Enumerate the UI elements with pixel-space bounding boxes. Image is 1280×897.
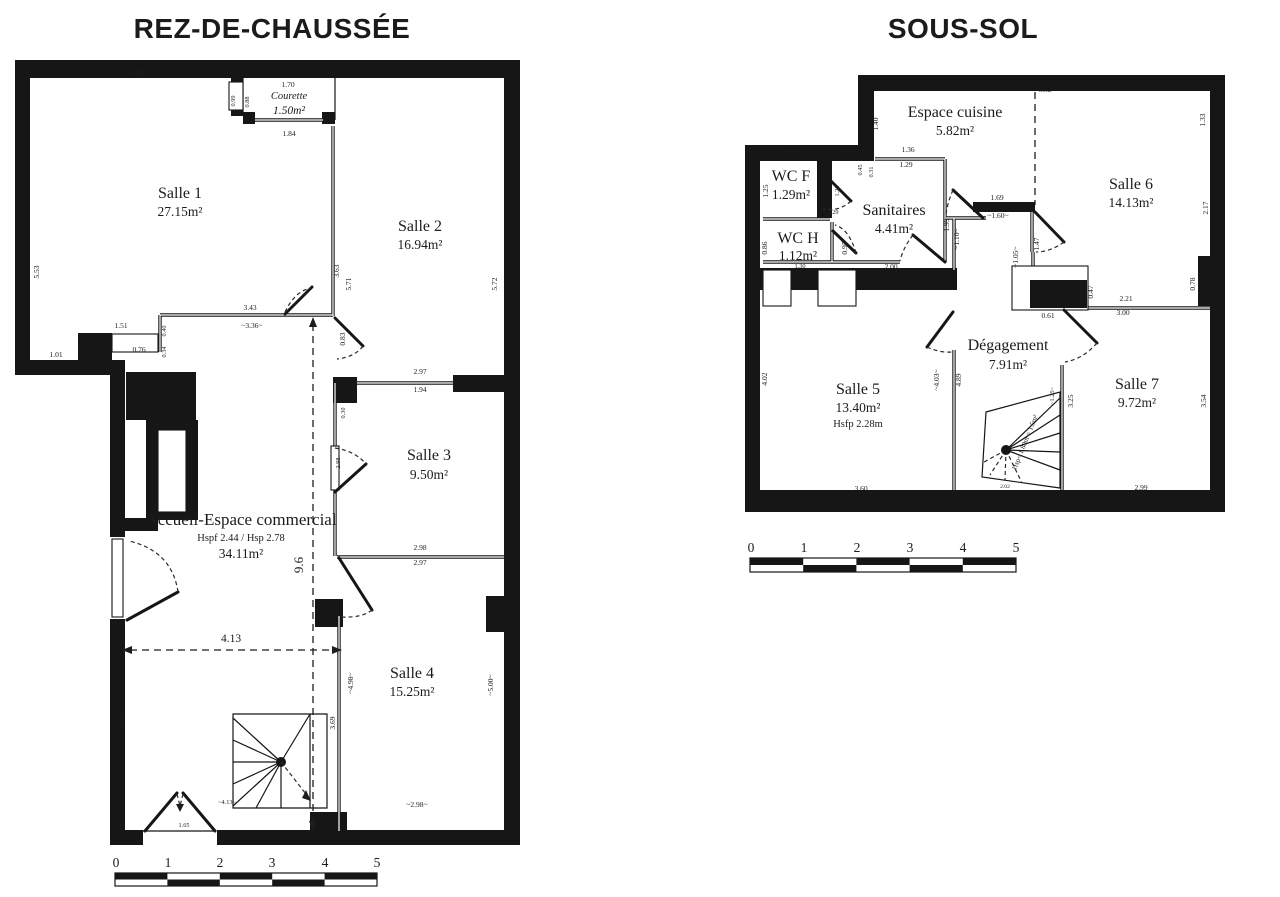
dim-label: 5.71: [344, 277, 353, 290]
dim-label: 5.53: [32, 265, 41, 278]
dim-label: ~2.98~: [406, 800, 427, 809]
wall-niche: [158, 430, 186, 512]
dim-label: 0.30: [340, 407, 347, 418]
dim-label: 3.77: [114, 711, 123, 724]
dim-label: 1.40: [871, 117, 880, 130]
dim-label: 0.45: [857, 164, 864, 175]
room-name: Salle 3: [407, 447, 451, 464]
dim-label: 0.30: [1200, 255, 1211, 262]
dim-label: 2.98: [335, 457, 342, 468]
room-area: 1.12m²: [779, 248, 817, 263]
dim-label: 0.35: [348, 386, 355, 397]
room-name: Accueil-Espace commercial: [145, 510, 336, 529]
dim-label: 3.63: [332, 264, 341, 277]
scale-tick: 0: [113, 855, 120, 870]
dim-label: 2.98: [413, 543, 426, 552]
dim-label: ~1.05~: [1011, 246, 1020, 267]
dim-label: ~5.00~: [486, 674, 495, 695]
dim-label: 0.78: [1188, 277, 1197, 290]
dim-label: 1.25: [761, 184, 770, 197]
dim-label: 0.59: [77, 343, 84, 354]
dim-label: 3.00: [1116, 308, 1129, 317]
scale-tick: 2: [217, 855, 224, 870]
dim-label: 0.47: [1086, 285, 1095, 298]
dim-label: 0.40: [161, 325, 168, 336]
dim-label: 0.76: [132, 345, 145, 354]
room-area: 9.72m²: [1118, 395, 1156, 410]
dim-label: 1.70: [281, 80, 294, 89]
scale-tick: 0: [748, 540, 755, 555]
plan-rez-de-chaussee: REZ-DE-CHAUSSÉE: [15, 13, 520, 886]
dim-label: 1.29: [899, 160, 912, 169]
room-area: 16.94m²: [398, 237, 443, 252]
dim-label: 6.52: [1038, 85, 1051, 94]
scale-tick: 4: [322, 855, 329, 870]
scale-tick: 1: [165, 855, 172, 870]
dim-label: 9.6: [291, 556, 306, 573]
dim-label: 1.20: [834, 185, 841, 196]
room-name: Salle 7: [1115, 376, 1159, 393]
dim-label: 4.89: [954, 373, 963, 386]
ssol-scale-bar: 0 1 2 3 4 5: [748, 540, 1020, 572]
dim-label: 2.21: [1119, 294, 1132, 303]
room-height-note: Hsfp 2.28m: [833, 419, 883, 430]
room-area: 4.41m²: [875, 221, 913, 236]
dim-label: 1.69: [990, 193, 1003, 202]
dim-label: 2.97: [413, 367, 426, 376]
wall-niche: [818, 270, 856, 306]
room-name: Espace cuisine: [908, 104, 1003, 121]
dim-label: 2.99: [1134, 483, 1147, 492]
dim-label: 2.00: [884, 262, 897, 271]
dim-label: 2.17: [1201, 201, 1210, 214]
dim-label: 2.97: [413, 558, 426, 567]
ssol-walls: [745, 75, 1225, 512]
dim-label: ~4.03~: [932, 369, 941, 390]
dim-label: 0.95: [840, 241, 849, 254]
dim-label: ~3.36~: [241, 321, 262, 330]
scale-tick: 1: [801, 540, 808, 555]
dim-label: ~1.10~: [952, 228, 961, 249]
room-area: 1.50m²: [273, 105, 305, 117]
dim-label: 1.36: [901, 145, 914, 154]
dim-label: 0.83: [338, 332, 347, 345]
scale-tick: 5: [374, 855, 381, 870]
room-area: 9.50m²: [410, 467, 448, 482]
dim-label: 0.92: [842, 149, 855, 158]
dim-label: 1.30: [794, 263, 805, 270]
dim-label: 0.99: [230, 95, 237, 106]
dim-label: 1.84: [282, 129, 295, 138]
dim-label: 5.72: [490, 277, 499, 290]
room-name: Salle 4: [390, 665, 434, 682]
dim-label: 2.02: [1000, 484, 1010, 490]
plan-title: SOUS-SOL: [888, 13, 1038, 44]
scale-tick: 4: [960, 540, 967, 555]
room-name: Sanitaires: [862, 202, 925, 219]
dim-label: 1.47: [1032, 237, 1041, 250]
floor-plan-page: REZ-DE-CHAUSSÉE: [0, 0, 1280, 897]
wall-niche: [763, 270, 791, 306]
dim-label: 0.34: [161, 346, 168, 358]
dim-label: 1.94: [413, 385, 426, 394]
scale-tick: 3: [269, 855, 276, 870]
dim-label: 3.54: [1199, 394, 1208, 407]
room-name: Dégagement: [968, 337, 1049, 354]
dim-label: 1.33: [1198, 113, 1207, 126]
dim-label: 4.09: [133, 67, 146, 76]
stair-newel: [1001, 445, 1011, 455]
ssol-stair: Hsp< 1.80m = 1.5m²: [982, 392, 1060, 488]
room-name: Salle 5: [836, 381, 880, 398]
dim-label: 0.29: [827, 209, 838, 216]
room-area: 14.13m²: [1109, 195, 1154, 210]
dim-label: 4.13: [221, 633, 241, 645]
dim-label: 4.02: [760, 372, 769, 385]
dim-label: ~1.60~: [987, 211, 1008, 220]
room-area: 34.11m²: [219, 546, 263, 561]
scale-tick: 5: [1013, 540, 1020, 555]
floor-plan-canvas: REZ-DE-CHAUSSÉE: [0, 0, 1280, 897]
room-area: 1.29m²: [772, 187, 810, 202]
dim-label: 0.88: [244, 96, 251, 107]
dim-label: ~1.25~: [1049, 386, 1056, 404]
plan-title: REZ-DE-CHAUSSÉE: [134, 13, 411, 44]
dim-label: ~4.13~: [218, 799, 236, 806]
room-name: Salle 1: [158, 185, 202, 202]
rdc-scale-bar: 0 1 2 3 4 5: [113, 855, 381, 886]
door-jamb: [112, 539, 123, 617]
room-area: 15.25m²: [390, 684, 435, 699]
room-name: WC F: [772, 168, 811, 185]
dim-label: 3.25: [1066, 394, 1075, 407]
dim-label: 1.65: [178, 822, 189, 829]
room-area: 7.91m²: [989, 357, 1027, 372]
room-name: Courette: [271, 91, 308, 102]
dim-label: 1.03: [784, 148, 797, 157]
dim-label: 0.61: [1041, 311, 1054, 320]
dim-label: 0.31: [868, 166, 875, 177]
room-area: 13.40m²: [836, 400, 881, 415]
dim-label: 3.60: [854, 484, 867, 493]
dim-label: 3.69: [328, 716, 337, 729]
room-name: Salle 6: [1109, 176, 1153, 193]
dim-label: 0.86: [760, 241, 769, 254]
dim-label: 1.99: [942, 218, 951, 231]
dim-label: 1.01: [49, 350, 62, 359]
room-name: WC H: [777, 230, 819, 247]
room-height-note: Hspf 2.44 / Hsp 2.78: [197, 533, 285, 544]
room-name: Salle 2: [398, 218, 442, 235]
door-leaf: [821, 171, 1097, 347]
room-area: 5.82m²: [936, 123, 974, 138]
plan-sous-sol: SOUS-SOL Hsp: [745, 13, 1225, 572]
room-area: 27.15m²: [158, 204, 203, 219]
dim-label: 1.51: [114, 321, 127, 330]
dim-label: ~4.98~: [346, 672, 355, 693]
scale-tick: 3: [907, 540, 914, 555]
scale-tick: 2: [854, 540, 861, 555]
dim-label: 3.43: [243, 303, 256, 312]
